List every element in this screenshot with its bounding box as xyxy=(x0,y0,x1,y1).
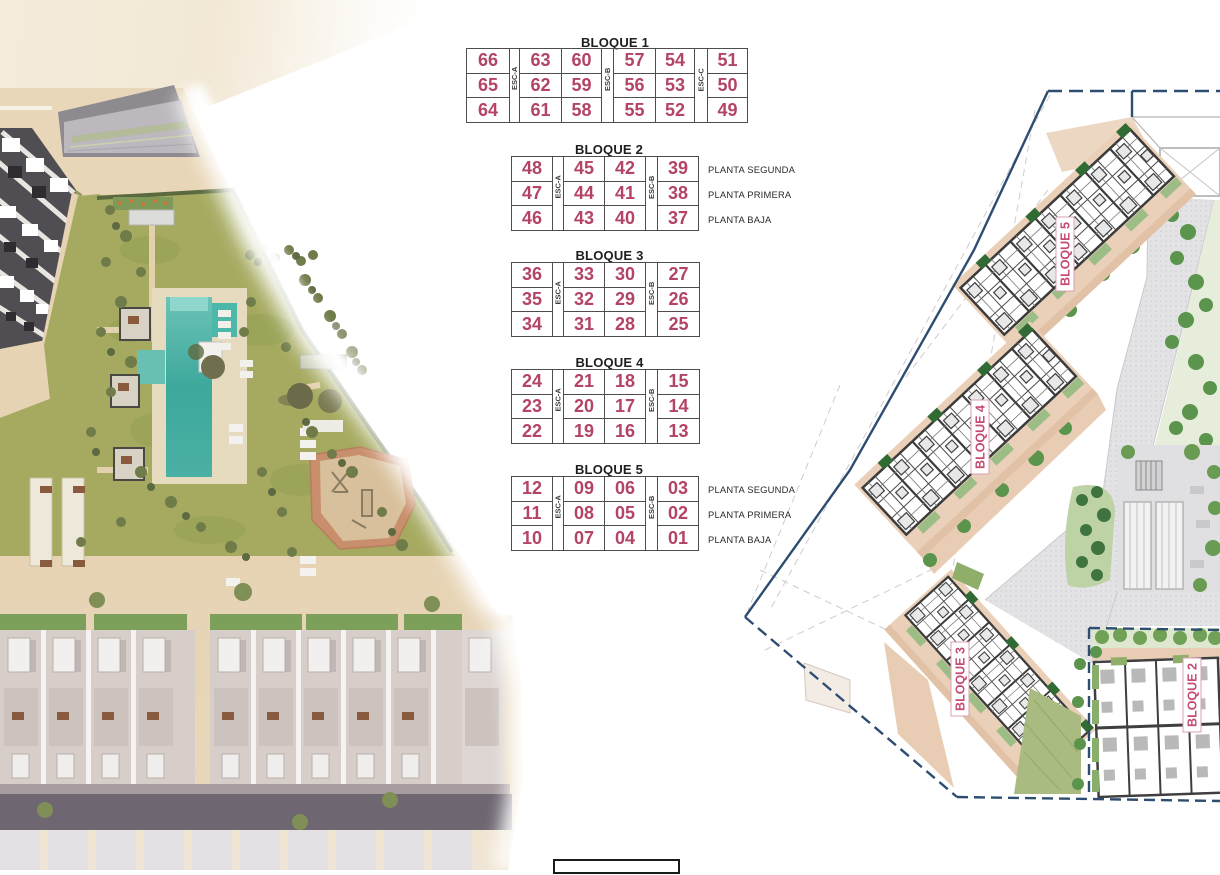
svg-text:BLOQUE 2: BLOQUE 2 xyxy=(1186,663,1200,727)
svg-text:BLOQUE 5: BLOQUE 5 xyxy=(1059,222,1073,286)
svg-text:BLOQUE 3: BLOQUE 3 xyxy=(954,647,968,711)
svg-text:BLOQUE 4: BLOQUE 4 xyxy=(974,405,988,469)
